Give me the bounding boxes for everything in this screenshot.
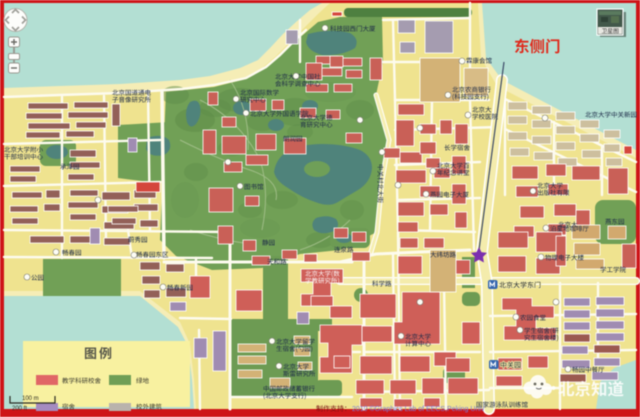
svg-text:100 m: 100 m (22, 396, 39, 402)
svg-text:200 ft: 200 ft (12, 406, 27, 412)
svg-text:2010 ©Graphics Lab of EECS,Pek: 2010 ©Graphics Lab of EECS,Peking Univ (352, 405, 485, 413)
